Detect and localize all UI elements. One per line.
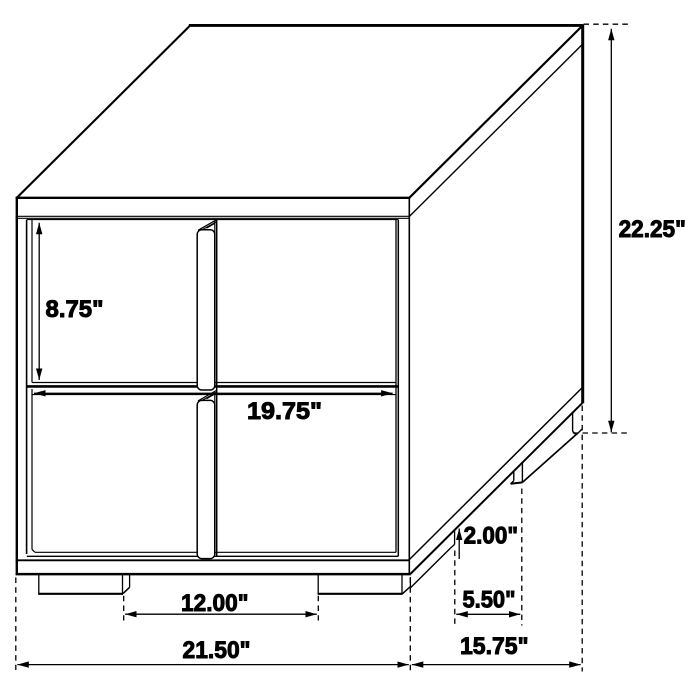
svg-text:12.00": 12.00": [181, 590, 249, 617]
svg-text:15.75": 15.75": [460, 633, 529, 660]
svg-text:19.75": 19.75": [247, 398, 322, 425]
svg-text:2.00": 2.00": [464, 522, 518, 549]
svg-text:21.50": 21.50": [183, 637, 251, 664]
svg-text:22.25": 22.25": [619, 216, 686, 243]
svg-text:5.50": 5.50": [463, 587, 516, 614]
svg-text:8.75": 8.75": [46, 296, 104, 323]
